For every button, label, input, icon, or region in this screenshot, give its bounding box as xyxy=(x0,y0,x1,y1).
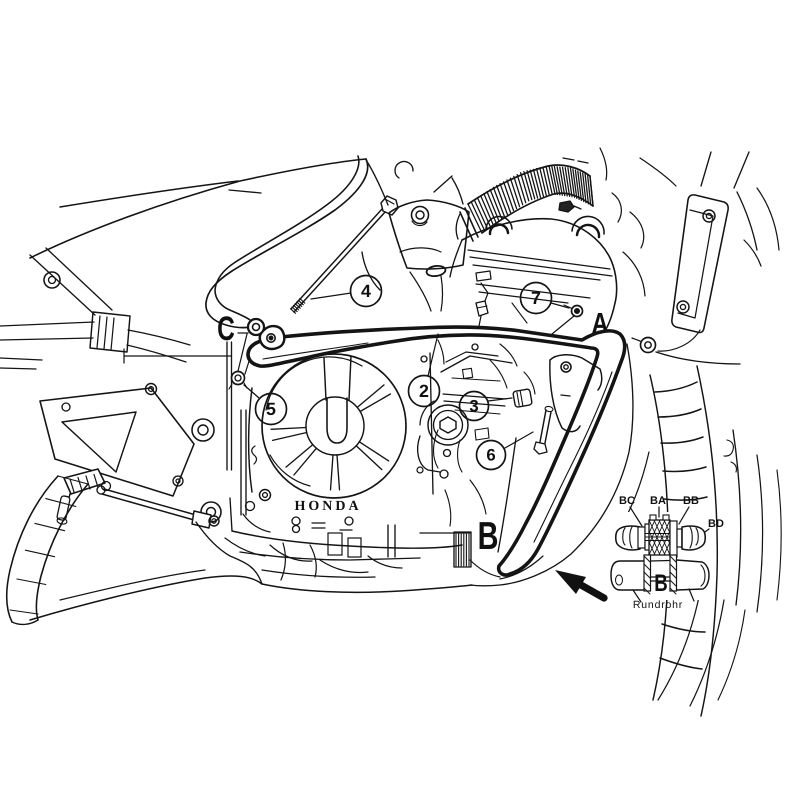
svg-text:2: 2 xyxy=(419,381,429,401)
svg-text:B: B xyxy=(654,570,668,597)
svg-text:BC: BC xyxy=(619,495,635,507)
svg-text:6: 6 xyxy=(486,446,495,465)
svg-text:5: 5 xyxy=(266,399,276,419)
svg-text:C: C xyxy=(217,310,235,348)
svg-text:B: B xyxy=(478,515,499,558)
svg-text:BD: BD xyxy=(708,518,724,530)
svg-text:BA: BA xyxy=(650,495,666,507)
svg-text:BB: BB xyxy=(683,495,699,507)
svg-text:HONDA: HONDA xyxy=(294,499,361,514)
svg-text:7: 7 xyxy=(531,288,541,308)
svg-text:4: 4 xyxy=(361,281,371,301)
svg-text:3: 3 xyxy=(469,397,478,416)
